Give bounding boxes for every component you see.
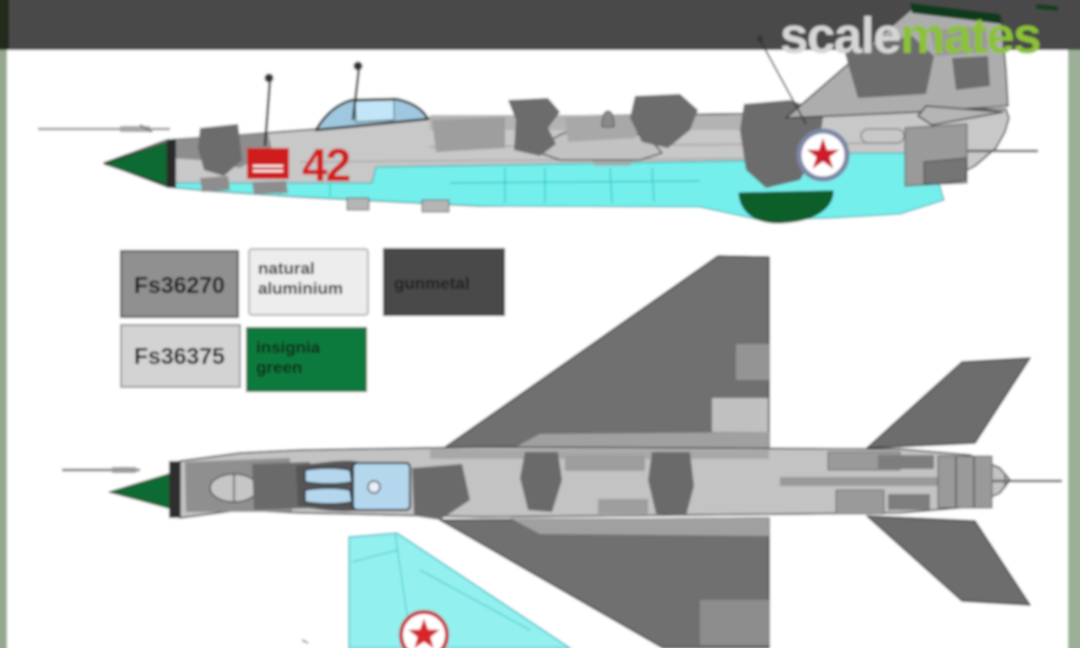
svg-text:42: 42 <box>302 139 350 191</box>
svg-text:aluminium: aluminium <box>258 279 343 298</box>
svg-text:Fs36375: Fs36375 <box>134 343 225 369</box>
svg-text:green: green <box>256 358 302 377</box>
svg-text:natural: natural <box>258 259 315 278</box>
svg-text:Fs36270: Fs36270 <box>134 272 225 298</box>
svg-text:scalemates: scalemates <box>780 7 1040 64</box>
svg-text:gunmetal: gunmetal <box>394 274 470 293</box>
svg-text:insignia: insignia <box>256 338 321 357</box>
